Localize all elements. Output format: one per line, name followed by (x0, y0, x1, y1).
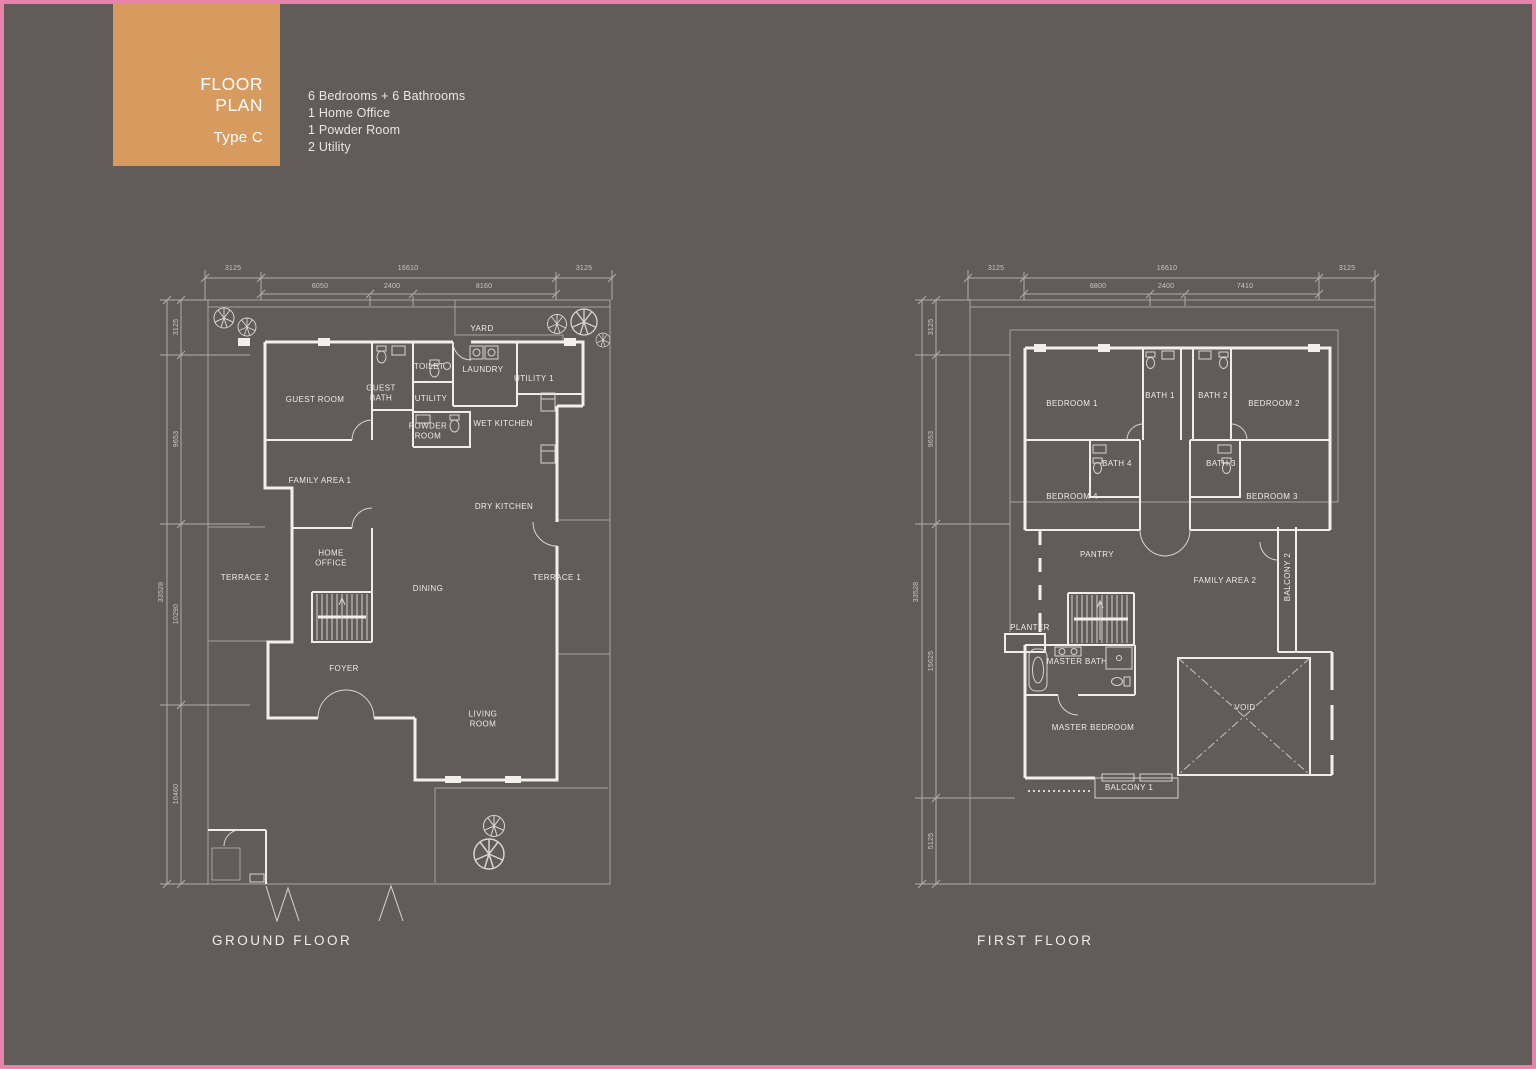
ff-site-lines (970, 300, 1375, 884)
gf-window-marks (238, 338, 576, 783)
ff-stairs (1072, 595, 1128, 643)
gf-site-lines (208, 300, 610, 884)
first-floor-drawing (915, 270, 1379, 888)
gf-stairs (317, 594, 367, 640)
gf-door-arcs (224, 342, 557, 846)
ground-floor-drawing (160, 270, 616, 921)
floor-plan-page: { "colors":{ "background":"#615B59","fra… (0, 0, 1536, 1069)
ff-fixtures (1029, 351, 1231, 798)
floorplan-drawing (0, 0, 1536, 1069)
gf-fixtures (250, 346, 555, 921)
gf-outer-walls (265, 342, 583, 780)
ff-interior-walls (1005, 348, 1332, 775)
ff-void-cross (1178, 658, 1310, 775)
gf-dimension-lines (160, 270, 616, 888)
